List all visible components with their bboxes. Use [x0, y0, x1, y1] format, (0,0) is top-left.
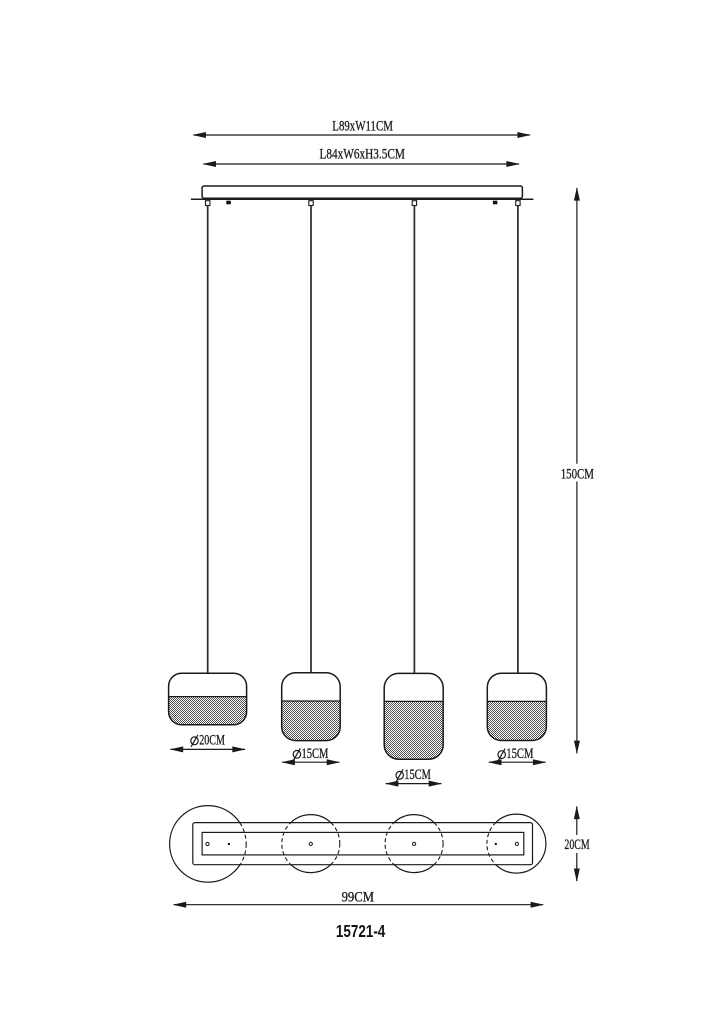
svg-text:15CM: 15CM [404, 767, 431, 783]
svg-text:20CM: 20CM [199, 732, 225, 748]
svg-text:L89xW11CM: L89xW11CM [332, 119, 393, 135]
svg-text:L84xW6xH3.5CM: L84xW6xH3.5CM [319, 146, 405, 162]
svg-text:150CM: 150CM [561, 466, 594, 482]
svg-text:99CM: 99CM [342, 890, 374, 906]
svg-text:20CM: 20CM [564, 837, 589, 853]
svg-text:15CM: 15CM [506, 746, 533, 762]
svg-text:15CM: 15CM [302, 746, 329, 762]
svg-text:15721-4: 15721-4 [336, 921, 386, 941]
